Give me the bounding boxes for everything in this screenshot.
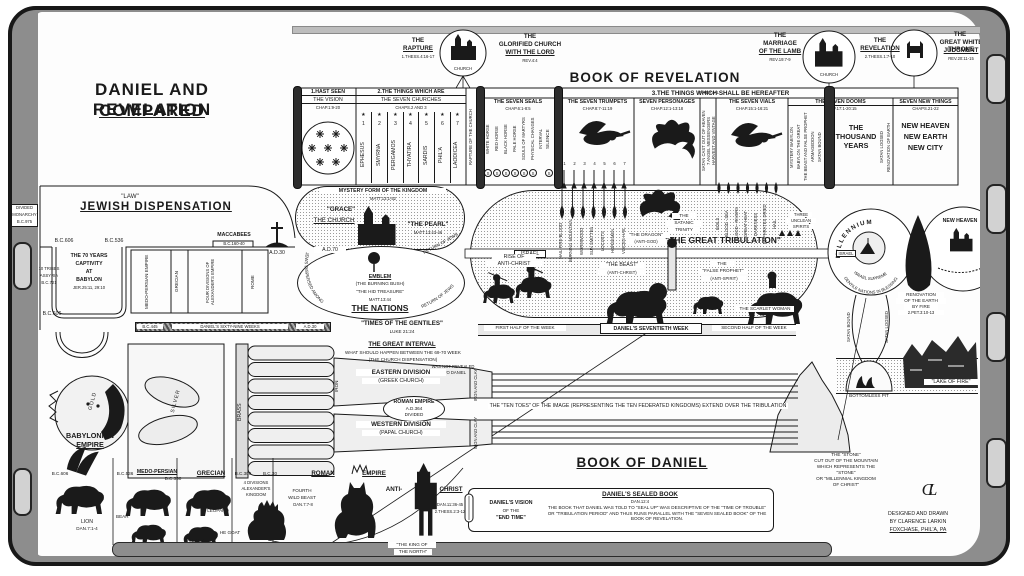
- rapture-label: THE: [398, 37, 438, 44]
- vial-drop-label: BLOOD - RIVERS: [734, 198, 741, 250]
- four-divisions: 4 DIVISIONS: [238, 480, 274, 485]
- church-name: LAODICEA: [453, 129, 462, 181]
- roller-icon: [986, 184, 1007, 234]
- the-church-label: THE CHURCH: [306, 217, 362, 224]
- glorified-ref: REV.4:4: [514, 58, 546, 63]
- western-division: WESTERN DIVISION: [356, 421, 446, 428]
- revelation-label: THE: [862, 37, 898, 44]
- church-num: 7: [450, 121, 465, 127]
- churches-sub: THE SEVEN CHURCHES: [356, 97, 466, 104]
- seal-item: RED HORSE: [494, 112, 502, 166]
- vision-header: 1.HAST SEEN: [300, 89, 356, 96]
- seal-icon: S: [520, 169, 528, 177]
- marriage-ref: REV.19:7-9: [756, 57, 804, 62]
- sealed-book-body: THE BOOK THAT DANIEL WAS TOLD TO "SEAL U…: [545, 505, 769, 522]
- church-name: PERGAMOS: [391, 129, 400, 181]
- thousand-years: THE: [834, 124, 878, 132]
- doom-right-strip: SATAN LOOSED: [879, 112, 885, 182]
- rapture-of-church-strip: RAPTURE OF THE CHURCH: [468, 92, 476, 182]
- dragon-sub: (ANTI-GOD): [626, 239, 666, 244]
- false-prophet2: "FALSE PROPHET": [698, 268, 748, 274]
- captivity-line: CAPTIVITY: [62, 261, 116, 267]
- bear-icon: [126, 490, 171, 516]
- seal-icon: S: [511, 169, 519, 177]
- great-interval-line2: (THE CHURCH DISPENSATION): [342, 357, 464, 363]
- signature-line3: FOXCHASE, PHIL'A, PA: [874, 527, 962, 533]
- glorified-label: THE: [508, 33, 552, 40]
- church-num: 1: [356, 121, 371, 127]
- book-of-revelation-title: BOOK OF REVELATION: [560, 71, 750, 86]
- pearl-label: "THE PEARL": [400, 221, 456, 228]
- daniels-vision2: OF THE: [492, 508, 530, 514]
- rapture-label2: RAPTURE: [394, 45, 442, 52]
- mystery-ref: MATT.13:1-52: [330, 196, 436, 201]
- bc606-date: B.C.606: [48, 238, 80, 244]
- satan-bound-label: SATAN BOUND: [846, 304, 853, 350]
- roller-icon: [554, 86, 563, 189]
- trumpet-num: 4: [591, 161, 598, 166]
- king-of-north2: THE NORTH": [394, 549, 432, 555]
- white-throne-label: THE: [942, 31, 978, 38]
- captivity-ref: JER.25:11, 29:10: [58, 285, 120, 290]
- brass-label: BRASS: [237, 390, 247, 434]
- seal-item: WHITE HORSE: [485, 112, 493, 166]
- churches-chap: CHAPS.2 AND 3: [356, 105, 466, 110]
- seal-item: INTERVAL: [538, 112, 545, 166]
- medo-persian-label: MEDO-PERSIAN: [132, 469, 182, 475]
- sealed-book-header: DANIEL'S SEALED BOOK: [560, 491, 720, 498]
- doom-strip: THE BEAST AND FALSE PROPHET: [803, 112, 809, 182]
- thousand-years3: YEARS: [834, 142, 878, 150]
- bear-label: BEAR: [116, 514, 140, 520]
- seventieth-week: DANIEL'S SEVENTIETH WEEK: [600, 323, 702, 334]
- eastern-division: EASTERN DIVISION: [356, 369, 446, 376]
- four-divisions2: ALEXANDER'S: [236, 486, 276, 491]
- seal-item: PALE HORSE: [512, 112, 520, 166]
- leopard-label: LEOPARD: [200, 508, 236, 514]
- scarlet-woman-label: THE SCARLET WOMAN: [736, 306, 794, 312]
- trumpet-num: 3: [581, 161, 588, 166]
- trumpet-drop-label: LOCUSTS: [600, 216, 607, 266]
- dragon-label: "THE DRAGON": [622, 232, 670, 238]
- iron-clay-label: IRON AND CLAY: [473, 368, 481, 402]
- church-star: ★: [419, 112, 434, 118]
- empire-column: ROME: [250, 252, 260, 312]
- gentiles-ref: LUKE 21:24: [366, 329, 438, 335]
- horse-rider-icon: [483, 273, 515, 303]
- monogram-icon: CL: [914, 480, 940, 500]
- seal-icon: S: [529, 169, 537, 177]
- grecian-label: GRECIAN: [190, 470, 232, 477]
- lion-label: LION: [72, 519, 102, 525]
- sealed-book-ref: DAN.12:4: [610, 499, 670, 504]
- stone-line2: CUT OUT OF THE MOUNTAIN: [790, 458, 902, 464]
- new-heaven-label: NEW HEAVEN: [934, 218, 986, 224]
- captivity-line: THE 70 YEARS: [60, 253, 118, 259]
- angel-icon: [731, 123, 782, 147]
- revelation-label2: REVELATION: [853, 45, 907, 52]
- dooms-chap: CHAP.17:1-20:15: [788, 106, 893, 111]
- ten-toes-label: THE "TEN TOES" OF THE IMAGE (REPRESENTIN…: [488, 403, 788, 409]
- empire-column: MEDO-PERSIAN EMPIRE: [144, 252, 158, 312]
- church-name: EPHESUS: [360, 129, 369, 181]
- trumpet-drop-label: SUN SMITTEN: [589, 216, 596, 266]
- white-throne-label3: JUDGMENT: [938, 47, 984, 54]
- church-name: PHIL'A: [438, 129, 447, 181]
- empire-column: GRECIAN: [174, 252, 184, 312]
- doom-strip: SATAN BOUND: [817, 112, 823, 182]
- seal-icon: S: [484, 169, 492, 177]
- treasure-ref: MATT.13:44: [356, 297, 404, 302]
- svg-text:RETURN OF JEWS: RETURN OF JEWS: [420, 283, 454, 309]
- babylon-date: B.C.606: [44, 471, 76, 477]
- trumpets-header: THE SEVEN TRUMPETS: [561, 99, 634, 105]
- hid-treasure-label: "THE HID TREASURE": [344, 289, 416, 295]
- trumpet-drop-label: HAIL-FIRE-BLOOD: [558, 216, 565, 266]
- beast-icon: [606, 283, 667, 326]
- bc606-lower: B.C.606: [36, 311, 68, 317]
- church-star: ★: [372, 112, 387, 118]
- divided-monarchy2: MONARCHY: [12, 212, 37, 217]
- roman-empire-date: A.D.364: [393, 406, 435, 412]
- church-num: 2: [372, 121, 387, 127]
- revelation-ref: 2.THESS.1:7-10: [851, 54, 909, 59]
- seal-icon: S: [493, 169, 501, 177]
- lamb-icon: [693, 296, 723, 314]
- new-things-line: NEW EARTH: [895, 133, 956, 141]
- signature-line2: BY CLARENCE LARKIN: [872, 519, 964, 525]
- seals-header: THE SEVEN SEALS: [483, 99, 553, 105]
- he-goat-label: HE GOAT: [212, 530, 248, 536]
- iron-clay-label2: IRON AND CLAY: [473, 416, 481, 450]
- vials-chap: CHAP.15:1-16:21: [716, 106, 788, 111]
- churches-header: 2.THE THINGS WHICH ARE: [356, 89, 466, 96]
- ad30-date: A.D.30: [262, 250, 292, 256]
- stone-line: THE "STONE": [790, 452, 902, 458]
- church-num: 3: [388, 121, 403, 127]
- captivity-line: AT: [70, 269, 108, 275]
- church-num: 5: [419, 121, 434, 127]
- new-things-chap: CHAPS.21-22: [893, 106, 958, 111]
- divided-monarchy: DIVIDED: [12, 205, 37, 210]
- grace-label: "GRACE": [318, 206, 364, 213]
- babylonian-empire: BABYLONIAN: [56, 432, 124, 440]
- winged-lion-icon: [56, 447, 104, 514]
- divided-monarchy3: B.C.975: [12, 219, 37, 224]
- ad30-weeks: A.D.30: [296, 324, 324, 329]
- roller-icon: [293, 86, 302, 189]
- white-throne-ref: REV.20:11-15: [936, 56, 986, 61]
- church-name: SARDIS: [423, 129, 432, 181]
- angel-icon: [579, 121, 630, 145]
- antichrist-statue-icon: [415, 463, 437, 536]
- tower-icon: [667, 238, 677, 290]
- seal-icon: S: [545, 169, 553, 177]
- church-num: 6: [435, 121, 450, 127]
- roller-icon: [476, 86, 485, 189]
- lampstands-icon: [302, 122, 354, 174]
- doom-strip: BABYLON THE GREAT: [796, 112, 802, 182]
- vials-header: THE SEVEN VIALS: [716, 99, 788, 105]
- times-of-gentiles: "TIMES OF THE GENTILES": [332, 320, 472, 327]
- church-name: SMYRNA: [376, 129, 385, 181]
- nations-label: THE NATIONS: [340, 304, 420, 313]
- marriage-label3: OF THE LAMB: [752, 48, 808, 55]
- svg-text:JEWS DISPERSED AMONG: JEWS DISPERSED AMONG: [304, 252, 325, 305]
- beast-sub: (ANTI-CHRIST): [598, 270, 646, 275]
- great-interval-line: WHAT SHOULD HAPPEN BETWEEN THE 69-70 WEE…: [328, 350, 478, 356]
- seal-item: PHYSICAL CHANGES: [530, 112, 538, 166]
- jewish-dispensation-title: JEWISH DISPENSATION: [58, 201, 254, 214]
- vial-drop-label: BOILS: [715, 198, 722, 250]
- trumpet-drop-label: VOICES-HAIL: [621, 216, 628, 266]
- iron-label: IRON: [334, 372, 343, 400]
- satan-loosed-label: SATAN LOOSED: [884, 304, 891, 350]
- antichrist-label: ANTI-: [380, 486, 408, 493]
- four-headed-beast-icon: [248, 500, 286, 540]
- doom-strip: ARMAGEDDON: [810, 112, 816, 182]
- interval-strip: HARVEST AND VINTAGE: [711, 100, 716, 182]
- trumpet-drop-label: HORSEMEN: [610, 216, 617, 266]
- horse-rider-icon: [515, 263, 551, 298]
- roman-empire-label: ROMAN EMPIRE: [385, 399, 443, 405]
- doom-right-strip: RENOVATION OF EARTH: [886, 112, 892, 182]
- renovation-label3: BY FIRE: [904, 304, 938, 310]
- trumpet-num: 7: [621, 161, 628, 166]
- burning-bush-label: (THE BURNING BUSH): [344, 281, 416, 287]
- trumpet-num: 5: [601, 161, 608, 166]
- vial-drop-label: DARKNESS: [753, 198, 760, 250]
- renovation-ref: 2.PET.3:10-13: [898, 310, 944, 315]
- fourth-beast-ref: DAN.7:7-8: [284, 502, 322, 507]
- eastern-division2: (GREEK CHURCH): [362, 378, 440, 384]
- interval-header: INTERVAL: [699, 90, 717, 95]
- jews-dispersed-arc: JEWS DISPERSED AMONG: [304, 252, 325, 305]
- book-of-daniel-title: BOOK OF DANIEL: [562, 456, 722, 471]
- new-things-line: NEW CITY: [895, 144, 956, 152]
- grecian-date1: B.C.309: [230, 471, 256, 477]
- trumpets-chap: CHAP.8:7-11:19: [561, 106, 634, 111]
- bc536-date: B.C.536: [98, 238, 130, 244]
- seals-chap: CHAP.6:1-8:5: [483, 106, 553, 111]
- glorified-label3: WITH THE LORD: [502, 49, 558, 56]
- trumpet-drop-label: BURNING MOUNTAIN: [568, 216, 575, 266]
- roller-icon: [986, 312, 1007, 362]
- renovation-label2: OF THE EARTH: [896, 298, 946, 304]
- seal-item: SOULS OF MARTYRS: [521, 112, 529, 166]
- false-prophet: THE: [710, 261, 734, 267]
- church-num: 4: [403, 121, 418, 127]
- cross-icon: [266, 222, 288, 247]
- renovation-label: RENOVATION: [898, 292, 944, 298]
- vision-chap: CHAP.1:9-20: [300, 105, 356, 110]
- vial-icon: [717, 182, 777, 194]
- bottomless-pit-label: BOTTOMLESS PIT: [842, 393, 896, 399]
- bottom-roller-rod: [112, 542, 832, 557]
- empire-column: FOUR DIVISIONS OF ALEXANDER'S EMPIRE: [205, 252, 219, 312]
- dragon-icon: [652, 120, 695, 159]
- roman-label2: EMPIRE: [354, 470, 394, 477]
- church-star: ★: [403, 112, 418, 118]
- vial-drop-label: GREAT HEAT: [743, 198, 750, 250]
- trumpet-num: 6: [611, 161, 618, 166]
- flame-icon: [560, 188, 626, 218]
- seal-item: BLACK HORSE: [503, 112, 511, 166]
- doom-strip: MYSTERY BABYLON: [789, 112, 795, 182]
- bc445-date: B.C.445: [137, 324, 163, 329]
- chart-photo: MILLENNIUM ISRAEL SUPREME GENTILE NATION…: [0, 0, 1024, 576]
- vial-drop-label: HAIL: [772, 198, 779, 250]
- roller-icon: [13, 468, 32, 516]
- grecian-date2: B.C.30: [258, 471, 282, 477]
- pearl-ref: MATT.13:43-46: [402, 230, 454, 235]
- fourth-beast-label: FOURTH: [284, 488, 320, 494]
- maccabees-date: B.C.160-40: [214, 241, 254, 246]
- scroll-icon: [465, 494, 473, 522]
- babylonian-empire2: EMPIRE: [66, 441, 114, 449]
- antichrist-label2: CHRIST: [434, 486, 468, 493]
- marriage-label2: MARRIAGE: [752, 40, 808, 47]
- daniels-vision: DANIEL'S VISION: [480, 500, 542, 506]
- fourth-beast-label2: WILD BEAST: [280, 495, 324, 501]
- second-half-week: SECOND HALF OF THE WEEK: [712, 325, 796, 331]
- personages-header: SEVEN PERSONAGES: [634, 99, 700, 105]
- stone-line5: OR "MILLENNIAL KINGDOM: [790, 476, 902, 482]
- law-label: "LAW": [108, 193, 152, 200]
- seal-item: SILENCE: [545, 112, 554, 166]
- church-star: ★: [435, 112, 450, 118]
- satanic-trinity3: TRINITY: [668, 227, 700, 233]
- ten-tribes3: B.C.721: [36, 280, 62, 285]
- lake-of-fire-label: "LAKE OF FIRE": [924, 379, 978, 385]
- church-circle-label: CHURCH: [451, 66, 475, 71]
- maccabees-label: MACCABEES: [212, 232, 256, 238]
- first-half-week: FIRST HALF OF THE WEEK: [484, 325, 566, 331]
- unclean-spirits: THREE: [790, 212, 812, 217]
- rise-antichrist2: ANTI-CHRIST: [486, 261, 542, 267]
- four-divisions3: KINGDOM: [240, 492, 272, 497]
- marriage-label: THE: [760, 32, 800, 39]
- captivity-line: BABYLON: [62, 277, 116, 283]
- lion-ref: DAN.7:1-4: [68, 526, 106, 532]
- church-name: THYATIRA: [407, 129, 416, 181]
- thousand-years2: THOUSAND: [830, 133, 882, 141]
- unclean-spirits2: UNCLEAN: [786, 218, 816, 223]
- roller-icon: [13, 242, 32, 290]
- ten-tribes: 10 TRIBES: [36, 266, 62, 271]
- rapture-ref: 1.THESS.4:16-17: [390, 54, 446, 59]
- church-star: ★: [356, 112, 371, 118]
- vial-drop-label: EUPHRATES DRIED: [762, 198, 769, 250]
- stone-line4: "STONE": [790, 470, 902, 476]
- return-of-jews-arc2: RETURN OF JEWS: [420, 283, 454, 309]
- antichrist-ref1: DAN.11:36-45: [430, 502, 470, 507]
- emblem-label: EMBLEM: [356, 274, 404, 280]
- page-title-2: COMPARED: [42, 101, 262, 121]
- rise-antichrist: RISE OF: [492, 254, 536, 260]
- personages-chap: CHAP.12:1-13:18: [634, 106, 700, 111]
- sixty-nine-weeks: DANIEL'S SIXTY-NINE WEEKS: [172, 324, 288, 329]
- vial-drop-label: BLOOD - SEA: [724, 198, 731, 250]
- ten-tribes2: ASSYRIA: [36, 273, 62, 278]
- antichrist-ref2: 2.THESS.2:3-12: [428, 509, 472, 514]
- satanic-trinity: THE: [672, 213, 696, 219]
- false-prophet3: (ANTI-SPIRIT): [702, 276, 746, 281]
- mystery-header: MYSTERY FORM OF THE KINGDOM: [320, 188, 446, 194]
- king-of-north: "THE KING OF: [388, 542, 436, 548]
- church-circle-label: CHURCH: [817, 72, 841, 77]
- satanic-trinity2: SATANIC: [666, 220, 702, 226]
- western-division2: (PAPAL CHURCH): [362, 430, 440, 436]
- roman-label: ROMAN: [304, 470, 342, 477]
- trumpet-num: 2: [571, 161, 578, 166]
- medo-date2: B.C.330: [160, 476, 186, 482]
- roller-icon: [986, 438, 1007, 488]
- trumpet-drop-label: WORMWOOD: [579, 216, 586, 266]
- israel-band-label2: ISRAEL: [836, 250, 856, 257]
- roller-icon: [986, 54, 1007, 104]
- scarlet-woman-icon: [748, 272, 802, 325]
- stone-line3: WHICH REPRESENTS THE: [790, 464, 902, 470]
- daniels-vision3: "END TIME": [486, 515, 536, 521]
- ad70-date: A.D.70: [314, 247, 346, 253]
- church-star: ★: [388, 112, 403, 118]
- great-interval-header: THE GREAT INTERVAL: [350, 341, 454, 348]
- glorified-label2: GLORIFIED CHURCH: [496, 41, 564, 48]
- unclean-spirits3: SPIRITS: [788, 224, 814, 229]
- signature-line: DESIGNED AND DRAWN: [870, 511, 966, 517]
- vision-sub: THE VISION: [300, 97, 356, 104]
- roller-icon: [824, 86, 835, 189]
- new-things-line: NEW HEAVEN: [895, 122, 956, 130]
- burning-bush-icon: [368, 252, 380, 272]
- seal-icon: S: [502, 169, 510, 177]
- stone-line6: OF CHRIST": [790, 482, 902, 488]
- roman-empire-divided: DIVIDED: [395, 412, 433, 418]
- church-star: ★: [450, 112, 465, 118]
